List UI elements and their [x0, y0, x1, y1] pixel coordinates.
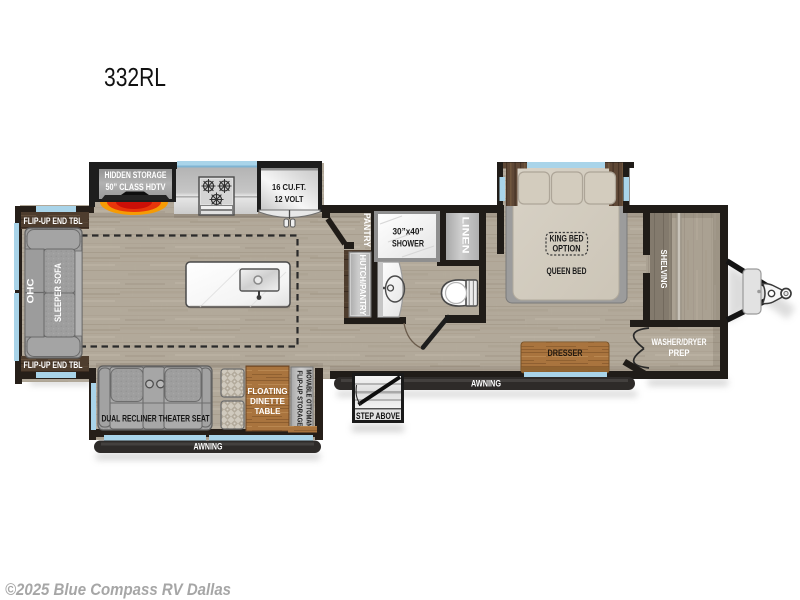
- svg-text:SHOWER: SHOWER: [392, 239, 425, 249]
- svg-text:AWNING: AWNING: [471, 379, 501, 389]
- svg-text:DRESSER: DRESSER: [548, 348, 584, 358]
- svg-text:FLIP-UP STORAGE: FLIP-UP STORAGE: [296, 371, 303, 427]
- svg-text:PANTRY: PANTRY: [362, 213, 372, 247]
- svg-text:12 VOLT: 12 VOLT: [275, 194, 305, 204]
- svg-text:HIDDEN STORAGE: HIDDEN STORAGE: [105, 170, 167, 181]
- svg-text:WASHER/DRYER: WASHER/DRYER: [652, 337, 707, 347]
- svg-text:MOVABLE OTTOMAN: MOVABLE OTTOMAN: [305, 370, 312, 428]
- svg-text:SLEEPER SOFA: SLEEPER SOFA: [53, 263, 63, 322]
- svg-text:FLIP-UP END TBL: FLIP-UP END TBL: [24, 216, 83, 226]
- svg-text:332RL: 332RL: [104, 62, 166, 92]
- svg-text:OPTION: OPTION: [553, 244, 581, 254]
- svg-text:PREP: PREP: [669, 348, 690, 358]
- svg-text:OHC: OHC: [26, 278, 36, 304]
- svg-text:QUEEN BED: QUEEN BED: [547, 266, 587, 276]
- svg-text:DUAL RECLINER THEATER SEAT: DUAL RECLINER THEATER SEAT: [102, 414, 210, 424]
- svg-text:30”x40”: 30”x40”: [393, 227, 424, 237]
- svg-text:50” CLASS HDTV: 50” CLASS HDTV: [106, 182, 167, 193]
- svg-text:HUTCH/PANTRY: HUTCH/PANTRY: [358, 255, 367, 317]
- svg-text:TABLE: TABLE: [255, 406, 281, 416]
- svg-text:FLOATING: FLOATING: [248, 386, 288, 396]
- svg-text:KING BED: KING BED: [550, 234, 584, 244]
- svg-text:LINEN: LINEN: [461, 217, 471, 254]
- svg-text:AWNING: AWNING: [194, 442, 223, 452]
- svg-text:SHELVING: SHELVING: [659, 250, 669, 289]
- svg-text:DINETTE: DINETTE: [250, 396, 285, 406]
- svg-text:©2025 Blue Compass RV Dallas: ©2025 Blue Compass RV Dallas: [5, 581, 231, 599]
- svg-text:FLIP-UP END TBL: FLIP-UP END TBL: [24, 360, 83, 370]
- svg-text:16 CU.FT.: 16 CU.FT.: [272, 182, 306, 192]
- svg-text:STEP ABOVE: STEP ABOVE: [356, 411, 400, 421]
